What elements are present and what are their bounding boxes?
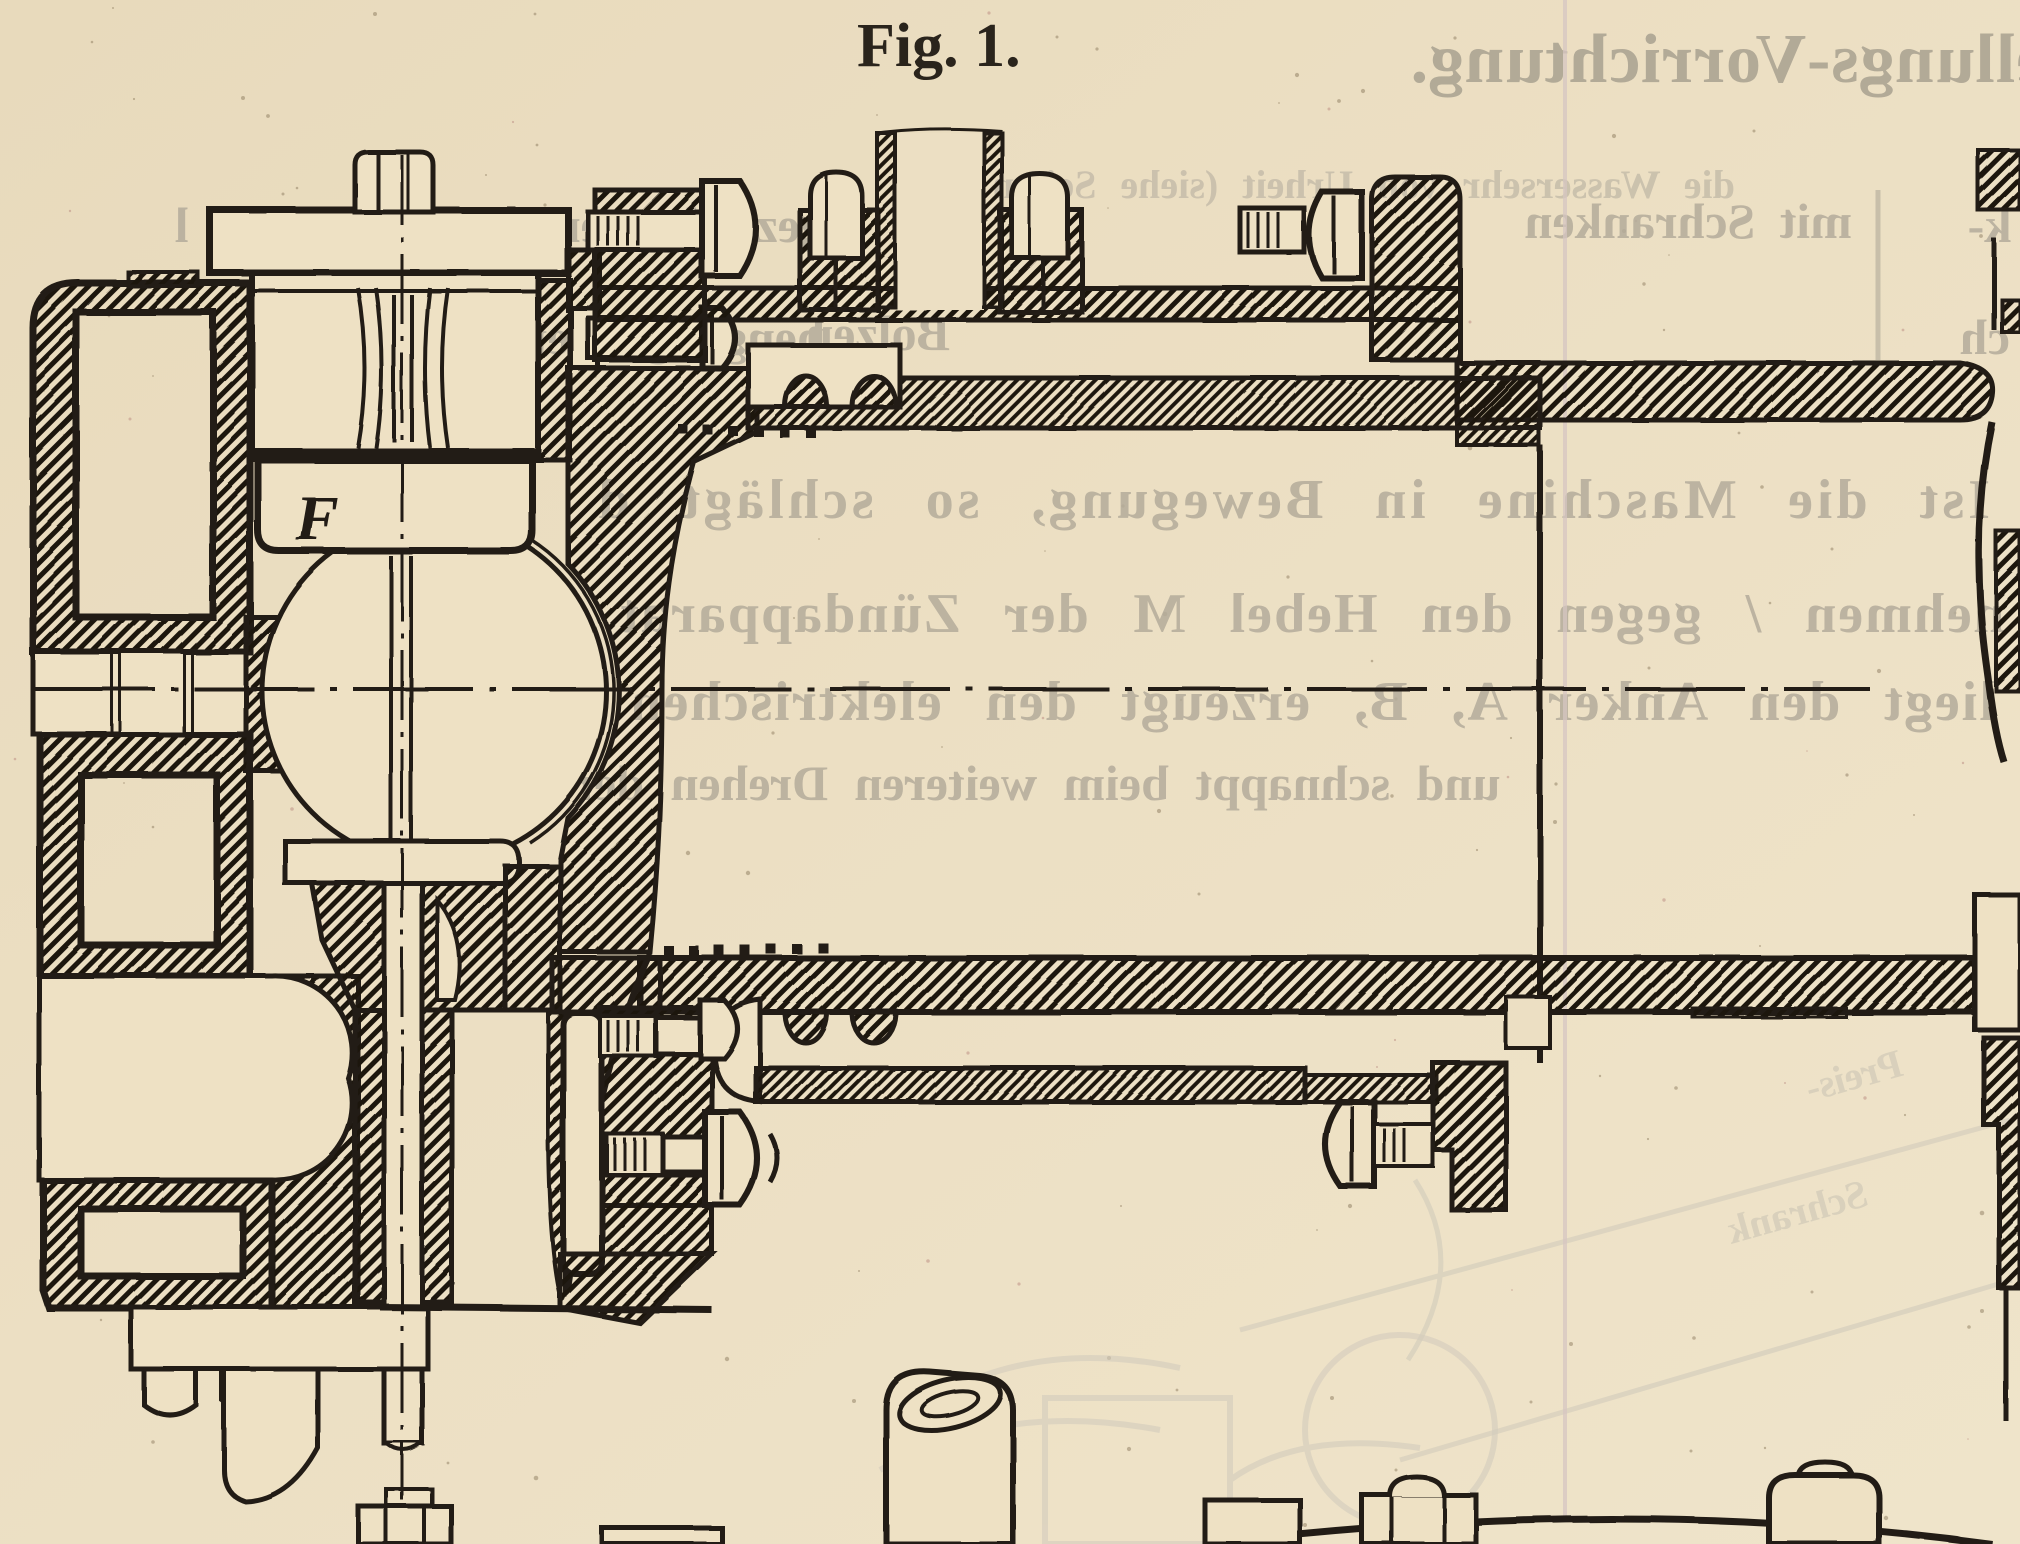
svg-text:liegt den Anker A, B, erzeugt: liegt den Anker A, B, erzeugt den elektr… [629,671,1995,733]
svg-text:Fig. 1.: Fig. 1. [857,12,1021,80]
svg-text:mit Schranken: mit Schranken [1525,193,1853,249]
svg-text:F: F [295,483,339,554]
svg-text:Ist die Maschine in Bewegung,: Ist die Maschine in Bewegung, so schlägt… [595,469,1990,531]
svg-text:stellungs-Vorrichtung.: stellungs-Vorrichtung. [1410,21,2020,98]
svg-text:nehmen / gegen den Hebel M der: nehmen / gegen den Hebel M der Zündappar… [618,583,2005,645]
